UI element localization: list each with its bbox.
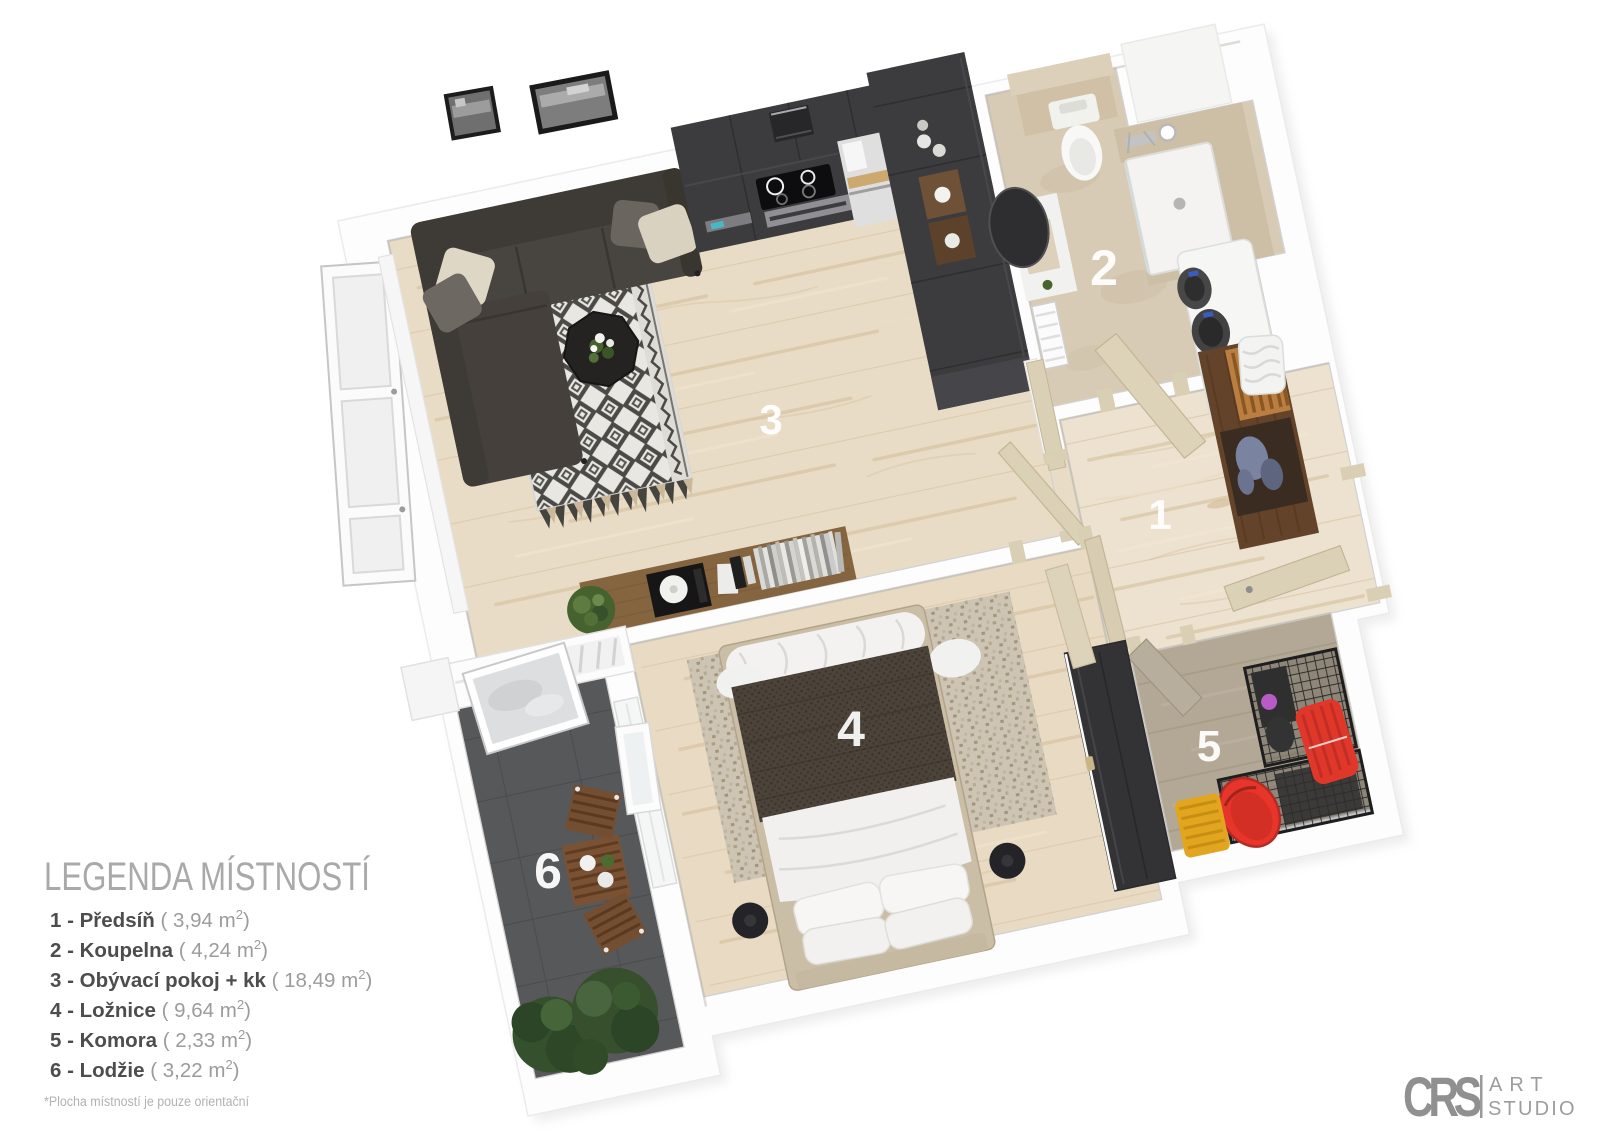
svg-text:2: 2	[1090, 240, 1118, 296]
svg-text:CRS: CRS	[1403, 1065, 1481, 1128]
svg-text:ART: ART	[1489, 1074, 1550, 1096]
svg-text:5: 5	[1197, 722, 1221, 771]
svg-text:1: 1	[1148, 491, 1171, 538]
svg-text:STUDIO: STUDIO	[1488, 1098, 1577, 1120]
svg-text:4: 4	[837, 701, 865, 757]
svg-text:3: 3	[759, 396, 782, 443]
svg-text:6: 6	[534, 843, 562, 899]
